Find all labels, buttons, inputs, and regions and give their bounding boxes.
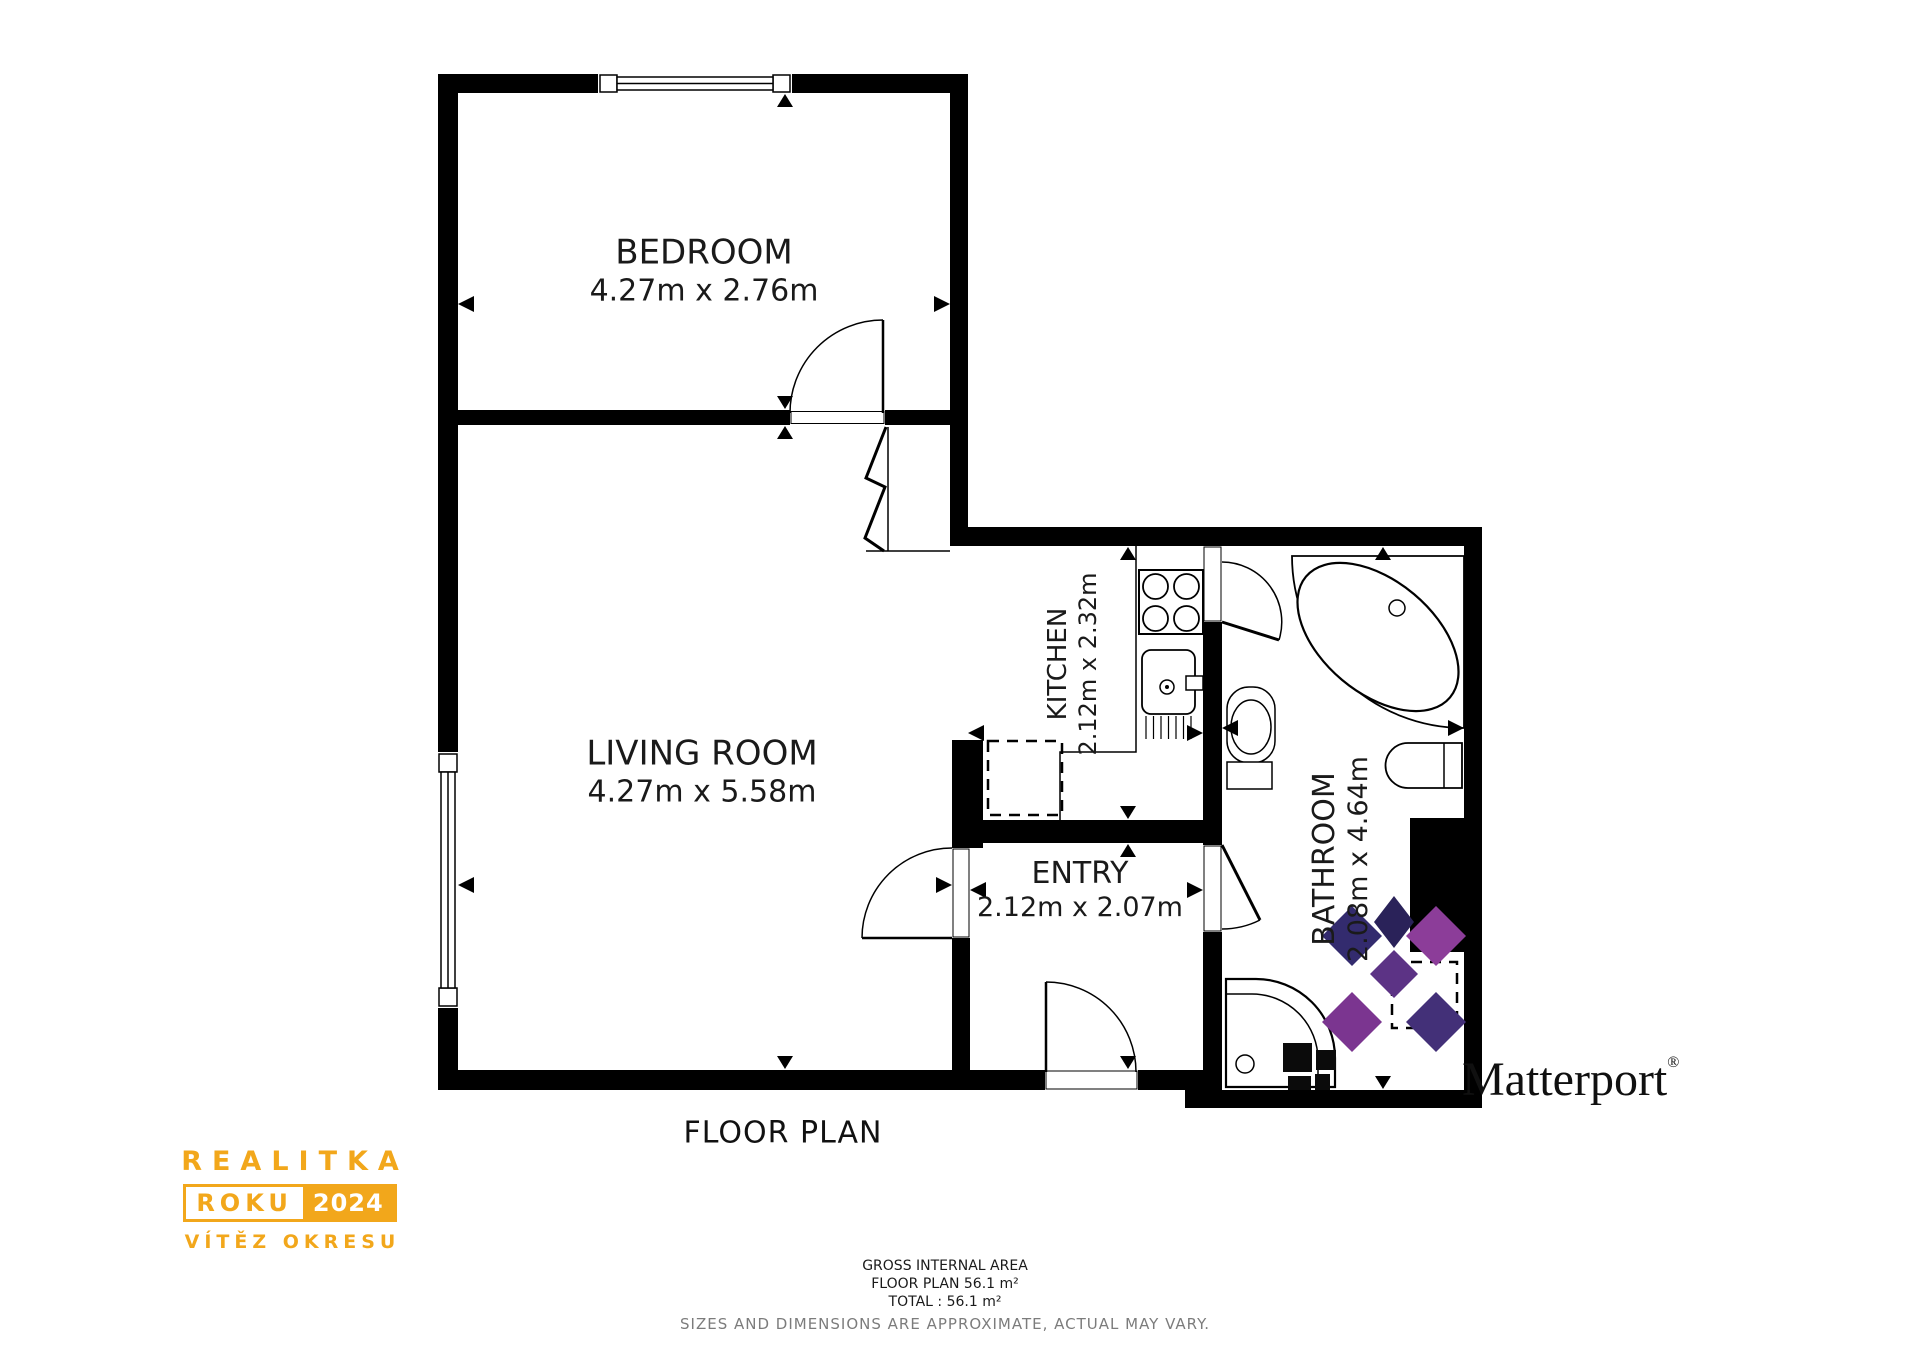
room-label-bedroom: BEDROOM 4.27m x 2.76m xyxy=(590,233,819,310)
roku-label: ROKU xyxy=(186,1187,303,1219)
room-name: LIVING ROOM xyxy=(586,734,817,775)
area-summary: GROSS INTERNAL AREA FLOOR PLAN 56.1 m² T… xyxy=(680,1258,1210,1333)
living-room-window-icon xyxy=(438,752,458,1008)
room-name: BATHROOM xyxy=(1307,756,1343,962)
matterport-pixel-mark-icon xyxy=(1283,1043,1336,1090)
room-dimensions: 2.08m x 4.64m xyxy=(1343,756,1375,962)
room-label-bathroom: BATHROOM 2.08m x 4.64m xyxy=(1307,756,1375,962)
room-name: BEDROOM xyxy=(590,233,819,274)
living-entry-door-icon xyxy=(862,848,970,938)
roku-2024-box: ROKU 2024 xyxy=(183,1184,396,1222)
entry-bathroom-door-icon xyxy=(1203,845,1260,932)
toilet-icon xyxy=(1227,687,1275,789)
bathroom-sink-icon xyxy=(1386,743,1463,788)
room-dimensions: 2.12m x 2.32m xyxy=(1074,572,1103,755)
bedroom-window-icon xyxy=(598,74,792,93)
matterport-wordmark: Matterport® xyxy=(1462,1052,1679,1107)
realitka-roku-badge: REALITKA ROKU 2024 VÍTĚZ OKRESU xyxy=(165,1146,415,1253)
bedroom-door-icon xyxy=(790,320,885,425)
gross-internal-area-label: GROSS INTERNAL AREA xyxy=(680,1258,1210,1276)
closet-bifold-door-icon xyxy=(865,427,950,551)
total-area-value: TOTAL : 56.1 m² xyxy=(680,1294,1210,1312)
kitchen-sink-icon xyxy=(1142,650,1203,739)
room-dimensions: 4.27m x 5.58m xyxy=(586,774,817,810)
room-label-living-room: LIVING ROOM 4.27m x 5.58m xyxy=(586,734,817,811)
corner-bathtub-icon xyxy=(1270,534,1486,741)
shower-icon xyxy=(1226,979,1335,1087)
front-door-icon xyxy=(1045,982,1138,1090)
registered-trademark-symbol: ® xyxy=(1667,1054,1679,1071)
dimensions-disclaimer: SIZES AND DIMENSIONS ARE APPROXIMATE, AC… xyxy=(680,1315,1210,1333)
room-name: KITCHEN xyxy=(1043,572,1074,755)
floor-plan-area-value: FLOOR PLAN 56.1 m² xyxy=(680,1276,1210,1294)
room-dimensions: 2.12m x 2.07m xyxy=(977,892,1183,924)
room-label-kitchen: KITCHEN 2.12m x 2.32m xyxy=(1043,572,1103,755)
realitka-title: REALITKA xyxy=(165,1146,425,1177)
year-2024-label: 2024 xyxy=(303,1187,394,1219)
vitez-okresu-label: VÍTĚZ OKRESU xyxy=(165,1231,420,1253)
room-dimensions: 4.27m x 2.76m xyxy=(590,273,819,309)
room-label-entry: ENTRY 2.12m x 2.07m xyxy=(977,856,1183,924)
matterport-name: Matterport xyxy=(1462,1053,1667,1106)
plan-title: FLOOR PLAN xyxy=(684,1116,883,1151)
floor-plan-page: BEDROOM 4.27m x 2.76m LIVING ROOM 4.27m … xyxy=(0,0,1920,1358)
stove-icon xyxy=(1139,570,1203,634)
room-name: ENTRY xyxy=(977,856,1183,892)
